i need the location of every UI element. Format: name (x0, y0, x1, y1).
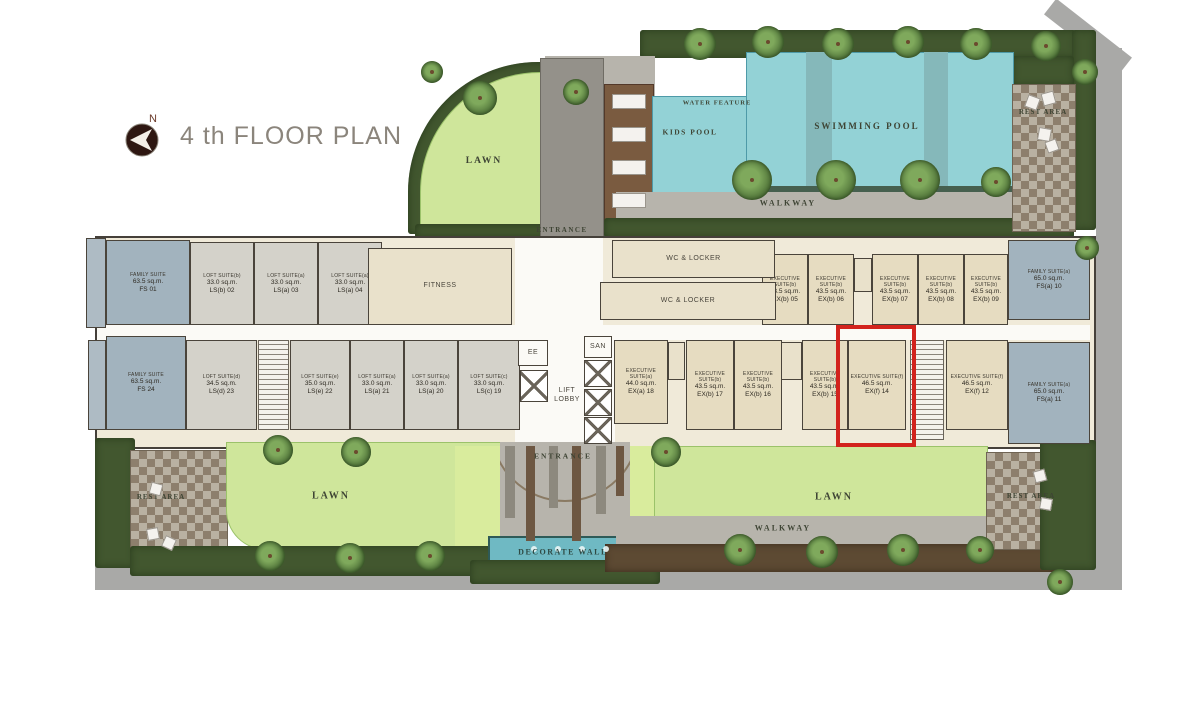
unit-code: EX(b) 17 (697, 391, 723, 399)
tree-icon-11 (463, 81, 497, 115)
room-label: FITNESS (423, 282, 456, 291)
tree-icon-13 (421, 61, 443, 83)
unit-EX-f-12: EXECUTIVE SUITE(f)46.5 sq.m.EX(f) 12 (946, 340, 1008, 430)
tree-icon-2 (822, 28, 854, 60)
hedge-under-walkway (604, 218, 1074, 238)
tree-icon-7 (732, 160, 772, 200)
north-arrow-icon: N (122, 112, 166, 160)
tree-icon-9 (900, 160, 940, 200)
unit-LS-b-02: LOFT SUITE(b)33.0 sq.m.LS(b) 02 (190, 242, 254, 325)
plaza-bar-5 (616, 446, 624, 496)
unit-area: 33.0 sq.m. (207, 279, 237, 287)
unit-code: LS(a) 21 (365, 388, 390, 396)
unit-area: 33.0 sq.m. (474, 380, 504, 388)
unit-code: EX(b) 08 (928, 296, 954, 304)
unit-LS-e-22: LOFT SUITE(e)35.0 sq.m.LS(e) 22 (290, 340, 350, 430)
unit-SV-B (88, 340, 106, 430)
unit-area: 46.5 sq.m. (962, 380, 992, 388)
unit-code: LS(c) 19 (477, 388, 502, 396)
unit-area: 33.0 sq.m. (335, 279, 365, 287)
unit-name: EXECUTIVE SUITE(b) (965, 276, 1007, 288)
tree-icon-4 (960, 28, 992, 60)
unit-EX-b-17: EXECUTIVE SUITE(b)43.5 sq.m.EX(b) 17 (686, 340, 734, 430)
unit-area: 33.0 sq.m. (271, 279, 301, 287)
unit-code: FS(a) 10 (1036, 283, 1061, 291)
label-lawn: LAWN (815, 492, 853, 503)
unit-code: EX(b) 06 (818, 296, 844, 304)
unit-LS-c-19: LOFT SUITE(c)33.0 sq.m.LS(c) 19 (458, 340, 520, 430)
green-right-plaza (628, 446, 654, 522)
outer-wall-right (1096, 48, 1122, 588)
unit-code: EX(b) 15 (812, 391, 838, 399)
unit-FS-01: FAMILY SUITE63.5 sq.m.FS 01 (106, 240, 190, 325)
highlighted-unit-box (836, 325, 916, 447)
tree-icon-12 (563, 79, 589, 105)
unit-area: 43.5 sq.m. (971, 288, 1001, 296)
service-core-2 (780, 342, 802, 380)
lounger-9 (146, 527, 160, 541)
unit-area: 43.5 sq.m. (743, 383, 773, 391)
unit-LS-a-03: LOFT SUITE(a)33.0 sq.m.LS(a) 03 (254, 242, 318, 325)
unit-area: 35.0 sq.m. (305, 380, 335, 388)
lounger-12 (1039, 497, 1053, 511)
unit-area: 33.0 sq.m. (416, 380, 446, 388)
unit-EX-b-08: EXECUTIVE SUITE(b)43.5 sq.m.EX(b) 08 (918, 254, 964, 325)
tree-icon-24 (1047, 569, 1073, 595)
tree-icon-19 (415, 541, 445, 571)
compass-n-label: N (149, 113, 157, 125)
hedge-bottom-left (95, 438, 135, 568)
tree-icon-22 (887, 534, 919, 566)
tree-icon-3 (892, 26, 924, 58)
tree-icon-23 (966, 536, 994, 564)
unit-code: FS 24 (137, 386, 154, 394)
tree-icon-6 (1072, 59, 1098, 85)
tree-icon-0 (684, 28, 716, 60)
unit-FS-a-11: FAMILY SUITE(a)65.0 sq.m.FS(a) 11 (1008, 342, 1090, 444)
service-core-1 (668, 342, 685, 380)
unit-FS-24: FAMILY SUITE63.5 sq.m.FS 24 (106, 336, 186, 430)
unit-code: EX(a) 18 (628, 388, 654, 396)
tree-icon-8 (816, 160, 856, 200)
room-wc-locker: WC & LOCKER (600, 282, 776, 320)
room-fitness: FITNESS (368, 248, 512, 325)
label-entrance: ENTRANCE (536, 226, 587, 234)
unit-area: 43.5 sq.m. (926, 288, 956, 296)
unit-code: LS(d) 23 (209, 388, 234, 396)
room-label: WC & LOCKER (661, 297, 716, 306)
label-rest-area: REST AREA (137, 493, 185, 501)
unit-name: EXECUTIVE SUITE(b) (687, 371, 733, 383)
unit-area: 65.0 sq.m. (1034, 388, 1064, 396)
unit-EX-a-18: EXECUTIVE SUITE(a)44.0 sq.m.EX(a) 18 (614, 340, 668, 424)
label-water-feature: WATER FEATURE (683, 100, 752, 107)
tree-icon-21 (806, 536, 838, 568)
unit-LS-a-21: LOFT SUITE(a)33.0 sq.m.LS(a) 21 (350, 340, 404, 430)
entrance-hall (515, 238, 603, 326)
unit-code: EX(b) 16 (745, 391, 771, 399)
unit-name: EXECUTIVE SUITE(b) (809, 276, 853, 288)
label-swimming-pool: SWIMMING POOL (814, 121, 919, 131)
tree-icon-1 (752, 26, 784, 58)
unit-code: EX(b) 09 (973, 296, 999, 304)
unit-code: LS(e) 22 (308, 388, 333, 396)
unit-area: 65.0 sq.m. (1034, 275, 1064, 283)
unit-area: 63.5 sq.m. (131, 378, 161, 386)
unit-area: 43.5 sq.m. (695, 383, 725, 391)
plaza-bar-0 (505, 446, 515, 518)
stair-0 (258, 340, 289, 430)
unit-SV-A (86, 238, 106, 328)
room-label: WC & LOCKER (666, 255, 721, 264)
unit-EX-b-06: EXECUTIVE SUITE(b)43.5 sq.m.EX(b) 06 (808, 254, 854, 325)
room-san: SAN (584, 336, 612, 358)
tree-icon-15 (341, 437, 371, 467)
unit-code: EX(f) 12 (965, 388, 989, 396)
tree-icon-17 (255, 541, 285, 571)
label-walkway: WALKWAY (760, 199, 816, 208)
unit-name: EXECUTIVE SUITE(a) (615, 368, 667, 380)
room-label: LIFT LOBBY (554, 387, 580, 405)
label-lawn: LAWN (466, 156, 503, 166)
unit-area: 44.0 sq.m. (626, 380, 656, 388)
lounger-0 (612, 94, 646, 109)
tree-icon-10 (981, 167, 1011, 197)
tree-icon-16 (651, 437, 681, 467)
lift-shaft-3 (584, 417, 612, 444)
unit-EX-b-09: EXECUTIVE SUITE(b)43.5 sq.m.EX(b) 09 (964, 254, 1008, 325)
label-kids-pool: KIDS POOL (663, 128, 718, 137)
room-ee: EE (518, 340, 548, 366)
unit-LS-a-20: LOFT SUITE(a)33.0 sq.m.LS(a) 20 (404, 340, 458, 430)
unit-name: EXECUTIVE SUITE(b) (735, 371, 781, 383)
lounger-1 (612, 127, 646, 142)
lawn-right (654, 446, 988, 522)
lift-shaft-0 (520, 370, 548, 402)
unit-EX-b-16: EXECUTIVE SUITE(b)43.5 sq.m.EX(b) 16 (734, 340, 782, 430)
unit-code: LS(a) 03 (274, 287, 299, 295)
unit-code: LS(b) 02 (210, 287, 235, 295)
title-block: N 4 th FLOOR PLAN (122, 112, 402, 160)
lift-shaft-1 (584, 360, 612, 387)
label-lawn: LAWN (312, 491, 350, 502)
label-rest-area: REST AREA (1019, 108, 1067, 116)
unit-area: 63.5 sq.m. (133, 278, 163, 286)
tree-icon-5 (1031, 31, 1061, 61)
unit-area: 34.5 sq.m. (206, 380, 236, 388)
page-title: 4 th FLOOR PLAN (180, 122, 402, 151)
tree-icon-14 (263, 435, 293, 465)
label-entrance: ENTRANCE (534, 452, 592, 461)
tree-icon-20 (724, 534, 756, 566)
lift-shaft-2 (584, 389, 612, 416)
unit-area: 33.0 sq.m. (362, 380, 392, 388)
lounger-2 (612, 160, 646, 175)
unit-name: EXECUTIVE SUITE(b) (919, 276, 963, 288)
label-decorate-wall: DECORATE WALL (518, 548, 608, 557)
unit-EX-b-07: EXECUTIVE SUITE(b)43.5 sq.m.EX(b) 07 (872, 254, 918, 325)
unit-area: 43.5 sq.m. (880, 288, 910, 296)
room-label: SAN (590, 343, 606, 352)
unit-code: EX(b) 05 (772, 296, 798, 304)
unit-code: EX(b) 07 (882, 296, 908, 304)
unit-code: LS(a) 04 (338, 287, 363, 295)
room-label: EE (528, 349, 538, 358)
room-wc-locker: WC & LOCKER (612, 240, 775, 278)
green-left-plaza (455, 446, 503, 546)
lounger-3 (612, 193, 646, 208)
tree-icon-25 (1075, 236, 1099, 260)
plaza-bar-4 (596, 446, 606, 514)
label-walkway: WALKWAY (755, 524, 811, 533)
tree-icon-18 (335, 543, 365, 573)
floor-plan-canvas: N 4 th FLOOR PLAN FAMILY SUITE63.5 sq.m.… (0, 0, 1200, 710)
room-lift-lobby: LIFT LOBBY (548, 368, 586, 424)
service-core-0 (854, 258, 872, 292)
unit-code: LS(a) 20 (419, 388, 444, 396)
unit-code: FS 01 (139, 286, 156, 294)
unit-LS-d-23: LOFT SUITE(d)34.5 sq.m.LS(d) 23 (186, 340, 257, 430)
unit-area: 43.5 sq.m. (816, 288, 846, 296)
unit-code: FS(a) 11 (1037, 396, 1062, 404)
unit-name: EXECUTIVE SUITE(b) (873, 276, 917, 288)
